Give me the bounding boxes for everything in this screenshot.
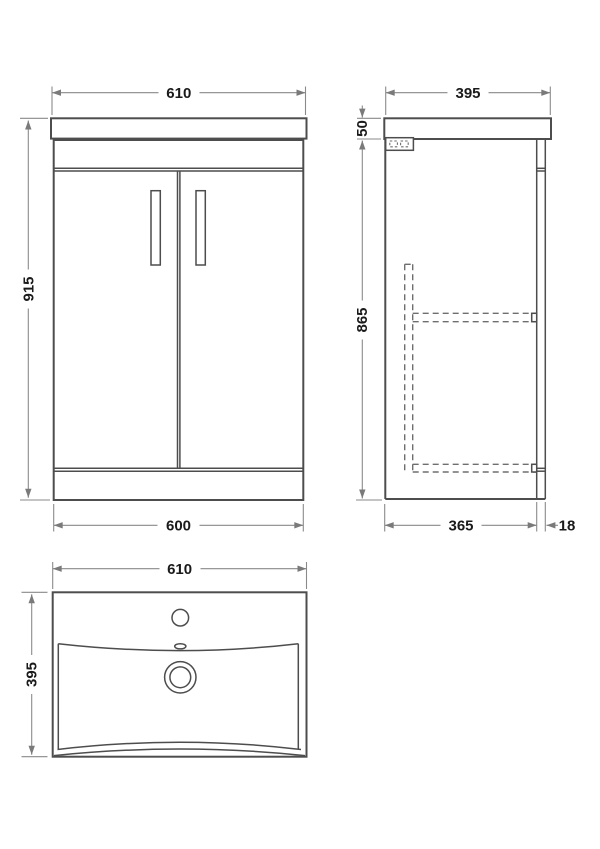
basin-plan-view: 610 395 bbox=[22, 561, 307, 757]
top-rail bbox=[54, 168, 304, 171]
waste-drain-hole bbox=[165, 662, 196, 693]
side-worktop-height-label: 50 bbox=[354, 120, 371, 137]
side-bottom-depth-label: 365 bbox=[448, 518, 473, 535]
basin-depth-label: 395 bbox=[24, 662, 41, 687]
countertop-side bbox=[384, 118, 551, 139]
front-bottom-width-dim: 600 bbox=[54, 504, 304, 535]
vanity-unit-technical-drawing: 610 915 600 bbox=[0, 0, 600, 849]
door-bottom-gap bbox=[54, 468, 304, 471]
side-door-thickness-label: 18 bbox=[559, 518, 576, 535]
side-top-depth-dim: 395 bbox=[386, 85, 551, 116]
basin-bowl bbox=[54, 644, 305, 756]
shelf-end-connector bbox=[532, 313, 537, 321]
cabinet-body-front bbox=[54, 140, 304, 500]
technical-drawing-page: 610 915 600 bbox=[0, 0, 600, 849]
basin-outline bbox=[53, 592, 307, 756]
base-end-connector bbox=[532, 464, 537, 472]
side-top-depth-label: 395 bbox=[455, 85, 480, 102]
basin-depth-dim: 395 bbox=[22, 592, 48, 756]
side-worktop-height-dim: 50 bbox=[354, 106, 381, 140]
front-height-dim: 915 bbox=[20, 118, 50, 500]
front-height-label: 915 bbox=[20, 276, 37, 301]
right-door-handle bbox=[196, 191, 205, 265]
basin-width-dim: 610 bbox=[53, 561, 307, 590]
basin-width-label: 610 bbox=[167, 561, 192, 578]
door-gap-divider bbox=[178, 171, 180, 468]
left-door-handle bbox=[151, 191, 160, 265]
front-bottom-width-label: 600 bbox=[166, 518, 191, 535]
countertop-front bbox=[51, 118, 307, 138]
front-top-width-dim: 610 bbox=[52, 85, 306, 116]
tap-hole bbox=[172, 609, 189, 626]
wall-fixing-bracket bbox=[386, 138, 414, 151]
side-cabinet-height-dim: 865 bbox=[354, 141, 383, 501]
hidden-interior-lines bbox=[405, 264, 537, 472]
overflow-slot bbox=[175, 644, 186, 649]
side-cabinet-height-label: 865 bbox=[354, 307, 371, 332]
front-view: 610 915 600 bbox=[20, 85, 307, 535]
side-bottom-depth-dim: 365 18 bbox=[385, 502, 576, 535]
door-side-profile bbox=[537, 140, 546, 499]
side-view: 395 50 865 365 18 bbox=[354, 85, 576, 535]
front-top-width-label: 610 bbox=[166, 85, 191, 102]
